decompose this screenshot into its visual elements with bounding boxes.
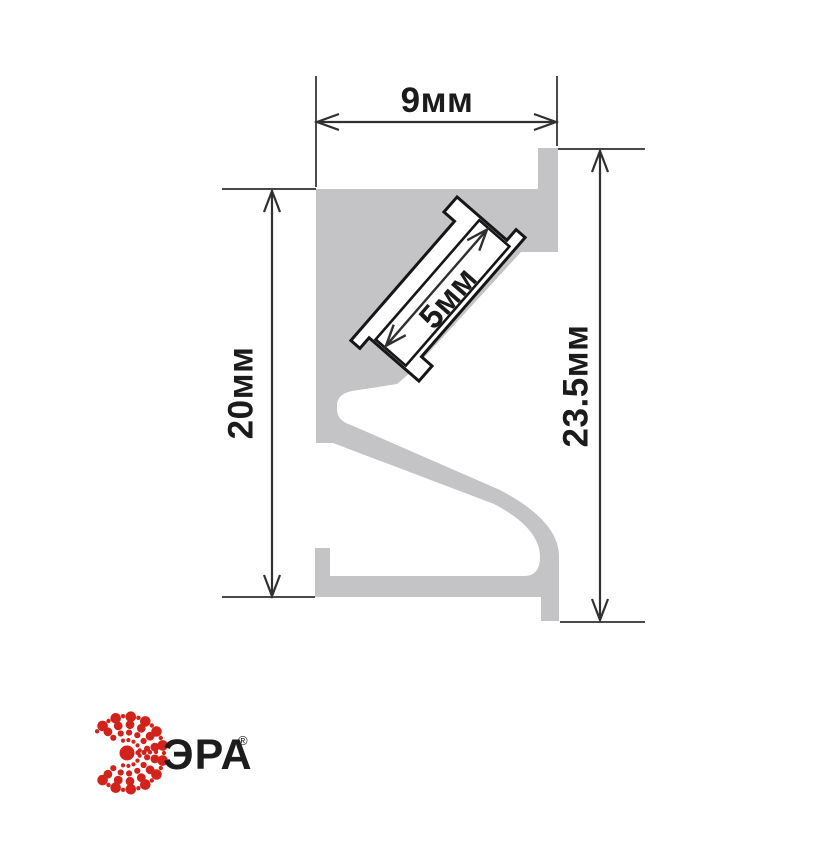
registered-trademark-mark: ® — [238, 733, 248, 748]
right-height-label: 23.5мм — [557, 325, 596, 448]
profile-silhouette — [315, 148, 559, 621]
profile-dimension-drawing: 5мм 9мм 20мм 23.5мм ЭРА ® — [0, 0, 838, 836]
left-height-label: 20мм — [222, 347, 261, 440]
top-width-label: 9мм — [401, 81, 474, 120]
era-logo-icon-dots — [95, 711, 168, 794]
era-logo-icon — [95, 711, 168, 794]
era-logo: ЭРА ® — [95, 711, 253, 794]
technical-drawing-page: 5мм 9мм 20мм 23.5мм ЭРА ® — [0, 0, 838, 836]
